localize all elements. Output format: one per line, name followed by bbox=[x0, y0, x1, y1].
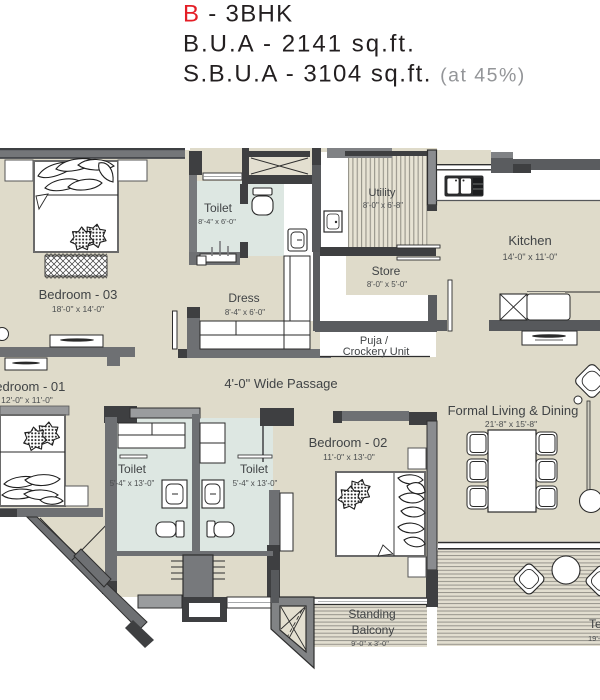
svg-text:14'-0" x 11'-0": 14'-0" x 11'-0" bbox=[503, 252, 558, 262]
svg-text:5'-4" x 13'-0": 5'-4" x 13'-0" bbox=[110, 479, 155, 488]
svg-text:Kitchen: Kitchen bbox=[508, 233, 551, 248]
svg-text:S.B.U.A - 3104 sq.ft. (at 45%): S.B.U.A - 3104 sq.ft. (at 45%) bbox=[183, 61, 526, 88]
svg-text:Standing: Standing bbox=[348, 607, 395, 621]
svg-text:Bedroom - 02: Bedroom - 02 bbox=[309, 435, 388, 450]
svg-text:8'-0" x 6'-8": 8'-0" x 6'-8" bbox=[363, 201, 403, 210]
svg-text:21'-8" x 15'-8": 21'-8" x 15'-8" bbox=[485, 419, 537, 429]
svg-text:Terrace: Terrace bbox=[589, 617, 600, 631]
svg-text:B.U.A - 2141 sq.ft.: B.U.A - 2141 sq.ft. bbox=[183, 31, 416, 58]
svg-text:Toilet: Toilet bbox=[204, 201, 233, 215]
svg-text:9'-0" x 3'-0": 9'-0" x 3'-0" bbox=[351, 639, 389, 648]
svg-text:19'-0" x 10'-0": 19'-0" x 10'-0" bbox=[588, 634, 600, 643]
svg-text:12'-0" x 11'-0": 12'-0" x 11'-0" bbox=[1, 395, 53, 405]
svg-text:8'-4" x 6'-0": 8'-4" x 6'-0" bbox=[198, 217, 236, 226]
svg-text:Crockery Unit: Crockery Unit bbox=[343, 346, 410, 358]
svg-text:Bedroom - 03: Bedroom - 03 bbox=[39, 287, 118, 302]
svg-text:Bedroom - 01: Bedroom - 01 bbox=[0, 379, 65, 394]
svg-text:Toilet: Toilet bbox=[118, 462, 147, 476]
svg-text:8'-4" x 6'-0": 8'-4" x 6'-0" bbox=[225, 308, 265, 317]
svg-text:11'-0" x 13'-0": 11'-0" x 13'-0" bbox=[323, 452, 375, 462]
svg-text:Toilet: Toilet bbox=[240, 462, 269, 476]
svg-text:B - 3BHK: B - 3BHK bbox=[183, 1, 293, 28]
svg-text:Balcony: Balcony bbox=[352, 623, 395, 637]
svg-text:Formal Living & Dining: Formal Living & Dining bbox=[448, 403, 579, 418]
svg-text:Store: Store bbox=[372, 264, 401, 278]
svg-text:18'-0" x 14'-0": 18'-0" x 14'-0" bbox=[52, 304, 104, 314]
svg-text:4'-0" Wide Passage: 4'-0" Wide Passage bbox=[224, 376, 337, 391]
svg-text:Utility: Utility bbox=[369, 187, 396, 199]
svg-text:8'-0" x 5'-0": 8'-0" x 5'-0" bbox=[367, 280, 407, 289]
svg-text:5'-4" x 13'-0": 5'-4" x 13'-0" bbox=[233, 479, 278, 488]
svg-text:Dress: Dress bbox=[228, 291, 259, 305]
